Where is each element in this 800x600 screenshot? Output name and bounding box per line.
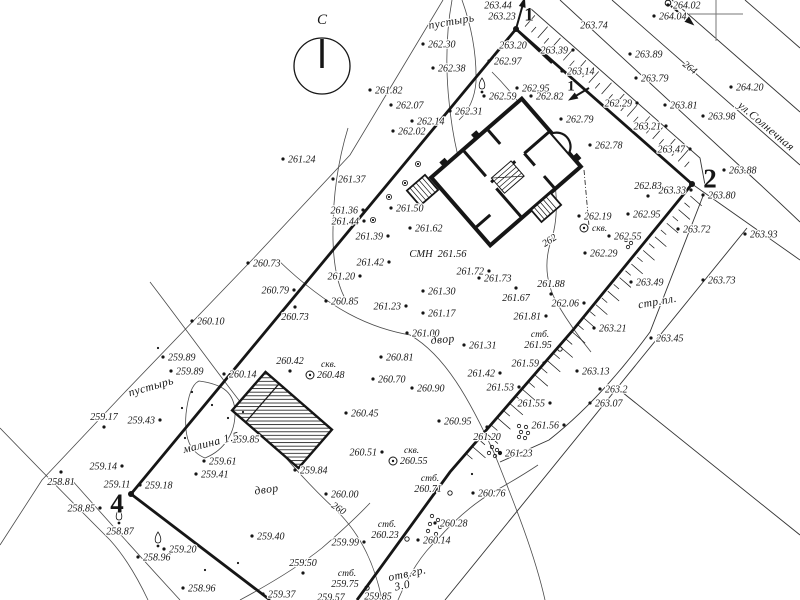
spot-elevation: 263.44 [484, 1, 512, 12]
spot-elevation: 261.23 [374, 302, 402, 313]
spot-elevation: 260.28 [440, 519, 468, 530]
spot-height-dot [162, 547, 165, 550]
spot-height-dot [448, 109, 451, 112]
spot-elevation: 261.88 [537, 279, 565, 290]
area-label: двор [430, 333, 455, 347]
spot-elevation: 261.42 [468, 369, 496, 380]
spot-elevation: 259.84 [300, 466, 328, 477]
spot-elevation: 261.50 [396, 204, 424, 215]
spot-elevation: 263.07 [595, 399, 624, 410]
spot-height-dot [722, 168, 725, 171]
spot-height-dot [701, 193, 704, 196]
spot-height-dot [250, 534, 253, 537]
spot-height-dot [387, 260, 390, 263]
spot-height-dot [292, 288, 295, 291]
spot-elevation: 262.78 [595, 141, 623, 152]
spot-height-dot [410, 119, 413, 122]
spot-elevation: 263.23 [488, 12, 516, 23]
spot-elevation: 260.14 [423, 536, 451, 547]
spot-elevation: 259.99 [332, 538, 360, 549]
spot-elevation: 259.18 [145, 481, 173, 492]
spot-elevation: 262.38 [438, 64, 466, 75]
spot-height-dot [634, 76, 637, 79]
spot-elevation: 260.81 [386, 353, 414, 364]
spot-height-dot [190, 319, 193, 322]
spot-height-dot [379, 355, 382, 358]
spot-height-dot [386, 234, 389, 237]
post-value: 259.75 [331, 579, 359, 590]
borehole-value: 260.55 [400, 456, 428, 467]
spot-height-dot [689, 188, 692, 191]
boundary-vertex-dot [513, 26, 519, 32]
corner-number: 1 [567, 78, 575, 94]
spot-elevation: 258.85 [68, 504, 96, 515]
bush-icon [426, 529, 429, 532]
spot-elevation: 259.41 [201, 470, 229, 481]
spot-elevation: 260.90 [417, 384, 445, 395]
spot-height-dot [549, 292, 552, 295]
spot-elevation: 263.93 [750, 230, 778, 241]
topographic-survey-plan: С263.44263.23263.20262.97262.30262.38261… [0, 0, 800, 600]
spot-height-dot [362, 219, 365, 222]
spot-height-dot [169, 369, 172, 372]
spot-height-dot [743, 232, 746, 235]
spot-height-dot [487, 59, 490, 62]
spot-elevation: 259.14 [90, 462, 118, 473]
spot-height-dot [431, 66, 434, 69]
bush-icon [526, 431, 529, 434]
spot-elevation: 263.98 [708, 112, 736, 123]
spot-height-dot [202, 459, 205, 462]
bush-icon [524, 425, 527, 428]
bush-icon [523, 436, 526, 439]
spot-height-dot [629, 280, 632, 283]
spot-elevation: 261.31 [469, 341, 497, 352]
spot-height-dot [362, 540, 365, 543]
spot-elevation: 262.31 [455, 107, 483, 118]
corner-number: 1 [524, 5, 534, 26]
bush-icon [495, 448, 498, 451]
tree-icon [155, 532, 161, 543]
spot-height-dot [405, 331, 408, 334]
spot-height-dot [136, 555, 139, 558]
spot-height-dot [652, 14, 655, 17]
spot-height-dot [477, 276, 480, 279]
spot-elevation: 261.56 [532, 421, 560, 432]
spot-elevation: 261.55 [518, 399, 546, 410]
spot-elevation: 263.21 [634, 122, 662, 133]
spot-height-dot [582, 301, 585, 304]
spot-elevation: 264.04 [659, 12, 687, 23]
spot-elevation: 262.30 [428, 40, 456, 51]
spot-elevation: 261.23 [505, 449, 533, 460]
shed-footprint [232, 372, 332, 468]
spot-height-dot [181, 586, 184, 589]
spot-height-dot [421, 311, 424, 314]
post-icon [405, 537, 409, 541]
spot-height-dot [514, 286, 517, 289]
spot-elevation: 262.79 [566, 115, 594, 126]
spot-height-dot [548, 401, 551, 404]
spot-elevation: 261.39 [356, 232, 384, 243]
spot-height-dot [664, 124, 667, 127]
spot-height-dot [194, 472, 197, 475]
spot-height-dot [293, 305, 296, 308]
post-value: 260.71 [414, 484, 442, 495]
spot-height-dot [663, 103, 666, 106]
spot-elevation: 259.57 [317, 593, 346, 600]
spot-elevation: 263.47 [658, 145, 687, 156]
spot-elevation: 260.14 [229, 370, 257, 381]
post-value: 261.95 [524, 340, 552, 351]
spot-elevation: 262.97 [494, 57, 523, 68]
spot-elevation: 262.29 [590, 249, 618, 260]
spot-elevation: 258.96 [143, 553, 171, 564]
spot-elevation: 259.17 [90, 412, 119, 423]
area-label: 3.0 [392, 579, 411, 594]
borehole-label: скв. [404, 446, 419, 456]
spot-elevation: 262.19 [584, 212, 612, 223]
spot-height-dot [571, 48, 574, 51]
spot-height-dot [649, 336, 652, 339]
spot-height-dot [433, 521, 436, 524]
spot-height-dot [560, 69, 563, 72]
spot-height-dot [437, 419, 440, 422]
spot-height-dot [368, 88, 371, 91]
spot-height-dot [542, 361, 545, 364]
boundary-vertex-dot [689, 181, 695, 187]
spot-height-dot [371, 377, 374, 380]
spot-elevation: 259.85 [364, 592, 392, 600]
borehole-label: скв. [321, 360, 336, 370]
spot-elevation: 263.72 [683, 225, 711, 236]
post-label: стб. [421, 473, 439, 484]
spot-elevation: 263.49 [636, 278, 664, 289]
spot-elevation: 263.88 [729, 166, 757, 177]
spot-height-dot [628, 52, 631, 55]
spot-elevation: 263.33 [659, 186, 687, 197]
spot-height-dot [517, 385, 520, 388]
spot-height-dot [416, 538, 419, 541]
spot-elevation: 258.87 [106, 527, 135, 538]
spot-elevation: 260.51 [350, 448, 378, 459]
spot-height-dot [598, 387, 601, 390]
spot-height-dot [607, 234, 610, 237]
spot-height-dot [344, 411, 347, 414]
spot-height-dot [222, 372, 225, 375]
spot-elevation: 263.81 [670, 101, 698, 112]
bush-icon [430, 514, 433, 517]
spot-height-dot [676, 227, 679, 230]
spot-height-dot [138, 483, 141, 486]
spot-elevation: 262.83 [634, 181, 662, 192]
spot-elevation: 261.53 [487, 383, 515, 394]
spot-elevation: 259.37 [268, 590, 297, 600]
spot-height-dot [482, 94, 485, 97]
spot-height-dot [729, 85, 732, 88]
spot-height-dot [529, 94, 532, 97]
spot-elevation: 260.85 [331, 297, 359, 308]
spot-elevation: 263.89 [635, 50, 663, 61]
spot-elevation: 262.55 [614, 232, 642, 243]
spot-elevation: 260.70 [378, 375, 406, 386]
spot-elevation: 259.43 [128, 416, 156, 427]
area-label: пустырь [127, 375, 175, 399]
post-label: стб. [378, 519, 396, 530]
borehole-label: скв. [592, 224, 607, 234]
spot-elevation: 260.42 [276, 356, 304, 367]
spot-elevation: 263.73 [708, 276, 736, 287]
spot-elevation: 259.61 [209, 457, 237, 468]
spot-elevation: 262.07 [396, 101, 425, 112]
spot-elevation: 259.89 [168, 353, 196, 364]
spot-elevation: 260.10 [197, 317, 225, 328]
spot-height-dot [577, 214, 580, 217]
spot-elevation: 261.62 [415, 224, 443, 235]
spot-height-dot [391, 129, 394, 132]
spot-height-dot [421, 289, 424, 292]
spot-height-dot [487, 269, 490, 272]
area-label: двор [254, 482, 280, 497]
spot-height-dot [485, 425, 488, 428]
spot-elevation: 264.02 [673, 1, 701, 12]
spot-height-dot [421, 42, 424, 45]
bush-icon [428, 522, 431, 525]
spot-elevation: 263.79 [641, 74, 669, 85]
area-label: пустырь [428, 12, 476, 32]
spot-height-dot [588, 401, 591, 404]
spot-height-dot [161, 355, 164, 358]
spot-elevation: 259.20 [169, 545, 197, 556]
corner-number: 2 [703, 163, 717, 193]
spot-elevation: 261.36 [331, 206, 359, 217]
spot-elevation: 259.50 [289, 558, 317, 569]
spot-height-dot [389, 103, 392, 106]
spot-height-dot [498, 371, 501, 374]
north-label: С [317, 12, 328, 28]
spot-height-dot [281, 157, 284, 160]
spot-elevation: 261.37 [338, 175, 367, 186]
spot-height-dot [158, 418, 161, 421]
spot-height-dot [358, 274, 361, 277]
corner-number: 4 [110, 488, 124, 518]
spot-height-dot [559, 117, 562, 120]
benchmark-value: 261.56 [438, 249, 468, 260]
post-icon [448, 491, 452, 495]
spot-height-dot [293, 468, 296, 471]
spot-height-dot [380, 450, 383, 453]
bush-icon [487, 451, 490, 454]
spot-height-dot [98, 506, 101, 509]
spot-elevation: 261.81 [514, 312, 542, 323]
spot-elevation: 263.21 [599, 324, 627, 335]
spot-elevation: 258.96 [188, 584, 216, 595]
bush-icon [626, 245, 629, 248]
spot-elevation: 260.73 [253, 259, 281, 270]
spot-elevation: 262.02 [398, 127, 426, 138]
spot-elevation: 262.29 [605, 99, 633, 110]
spot-height-dot [635, 101, 638, 104]
area-label: стр.пл. [637, 293, 678, 312]
spot-elevation: 260.95 [444, 417, 472, 428]
post-icon [558, 347, 562, 351]
spot-elevation: 260.00 [331, 490, 359, 501]
spot-elevation: 261.17 [428, 309, 457, 320]
spot-height-dot [562, 423, 565, 426]
spot-elevation: 261.73 [484, 274, 512, 285]
spot-elevation: 260.45 [351, 409, 379, 420]
north-arrow: С [294, 12, 350, 94]
spot-height-dot [301, 571, 304, 574]
spot-elevation: 263.13 [582, 367, 610, 378]
spot-elevation: 263.20 [499, 41, 527, 52]
spot-elevation: 263.39 [541, 46, 569, 57]
post-label: стб. [338, 568, 356, 579]
spot-height-dot [646, 194, 649, 197]
spot-height-dot [588, 143, 591, 146]
spot-height-dot [404, 304, 407, 307]
spot-elevation: 261.44 [332, 217, 360, 228]
tree-icon [479, 78, 485, 89]
spot-height-dot [498, 451, 501, 454]
spot-elevation: 263.2 [605, 385, 628, 396]
spot-elevation: 262.82 [536, 92, 564, 103]
spot-elevation: 261.20 [328, 272, 356, 283]
spot-height-dot [701, 114, 704, 117]
spot-height-dot [701, 278, 704, 281]
spot-height-dot [471, 491, 474, 494]
spot-height-dot [410, 386, 413, 389]
spot-height-dot [626, 212, 629, 215]
spot-elevation: 261.67 [502, 293, 531, 304]
spot-elevation: 261.30 [428, 287, 456, 298]
spot-height-dot [583, 251, 586, 254]
spot-height-dot [331, 177, 334, 180]
contour-label: 260 [329, 500, 348, 517]
spot-elevation: 261.82 [375, 86, 403, 97]
bush-icon [517, 435, 520, 438]
post-value: 260.23 [371, 530, 399, 541]
area-label: малина 1.5 [181, 430, 241, 456]
spot-height-dot [120, 464, 123, 467]
spot-height-dot [688, 147, 691, 150]
spot-elevation: 260.73 [281, 312, 309, 323]
spot-elevation: 260.79 [262, 286, 290, 297]
borehole-value: 260.48 [317, 370, 345, 381]
spot-height-dot [666, 3, 669, 6]
boundary-vertex-dot [128, 491, 134, 497]
benchmark-code: СМН [409, 249, 434, 260]
spot-height-dot [462, 343, 465, 346]
spot-elevation: 261.42 [357, 258, 385, 269]
area-label: ул.Солнечная [735, 99, 797, 154]
spot-elevation: 262.06 [552, 299, 580, 310]
plot-boundary [131, 29, 692, 600]
spot-height-dot [575, 369, 578, 372]
spot-elevation: 261.24 [288, 155, 316, 166]
contour-label: 262 [540, 232, 559, 249]
spot-height-dot [389, 206, 392, 209]
spot-height-dot [408, 226, 411, 229]
spot-elevation: 262.95 [633, 210, 661, 221]
spot-height-dot [288, 369, 291, 372]
spot-height-dot [515, 86, 518, 89]
spot-height-dot [246, 261, 249, 264]
spot-elevation: 259.89 [176, 367, 204, 378]
spot-height-dot [324, 492, 327, 495]
spot-height-dot [102, 425, 105, 428]
spot-elevation: 264.20 [736, 83, 764, 94]
bush-icon [517, 424, 520, 427]
spot-height-dot [261, 592, 264, 595]
spot-elevation: 263.74 [580, 21, 608, 32]
spot-elevation: 261.72 [457, 267, 485, 278]
spot-elevation: 263.45 [656, 334, 684, 345]
spot-height-dot [544, 314, 547, 317]
spot-height-dot [592, 326, 595, 329]
spot-height-dot [324, 299, 327, 302]
survey-map-canvas: С263.44263.23263.20262.97262.30262.38261… [0, 0, 800, 600]
spot-elevation: 263.14 [567, 67, 595, 78]
spot-elevation: 261.20 [473, 432, 501, 443]
spot-elevation: 259.40 [257, 532, 285, 543]
post-label: стб. [531, 329, 549, 340]
spot-height-dot [59, 470, 62, 473]
spot-elevation: 260.76 [478, 489, 506, 500]
spot-height-dot [361, 208, 364, 211]
spot-elevation: 262.59 [489, 92, 517, 103]
spot-elevation: 261.59 [512, 359, 540, 370]
spot-elevation: 258.81 [47, 477, 75, 488]
bush-icon [519, 430, 522, 433]
